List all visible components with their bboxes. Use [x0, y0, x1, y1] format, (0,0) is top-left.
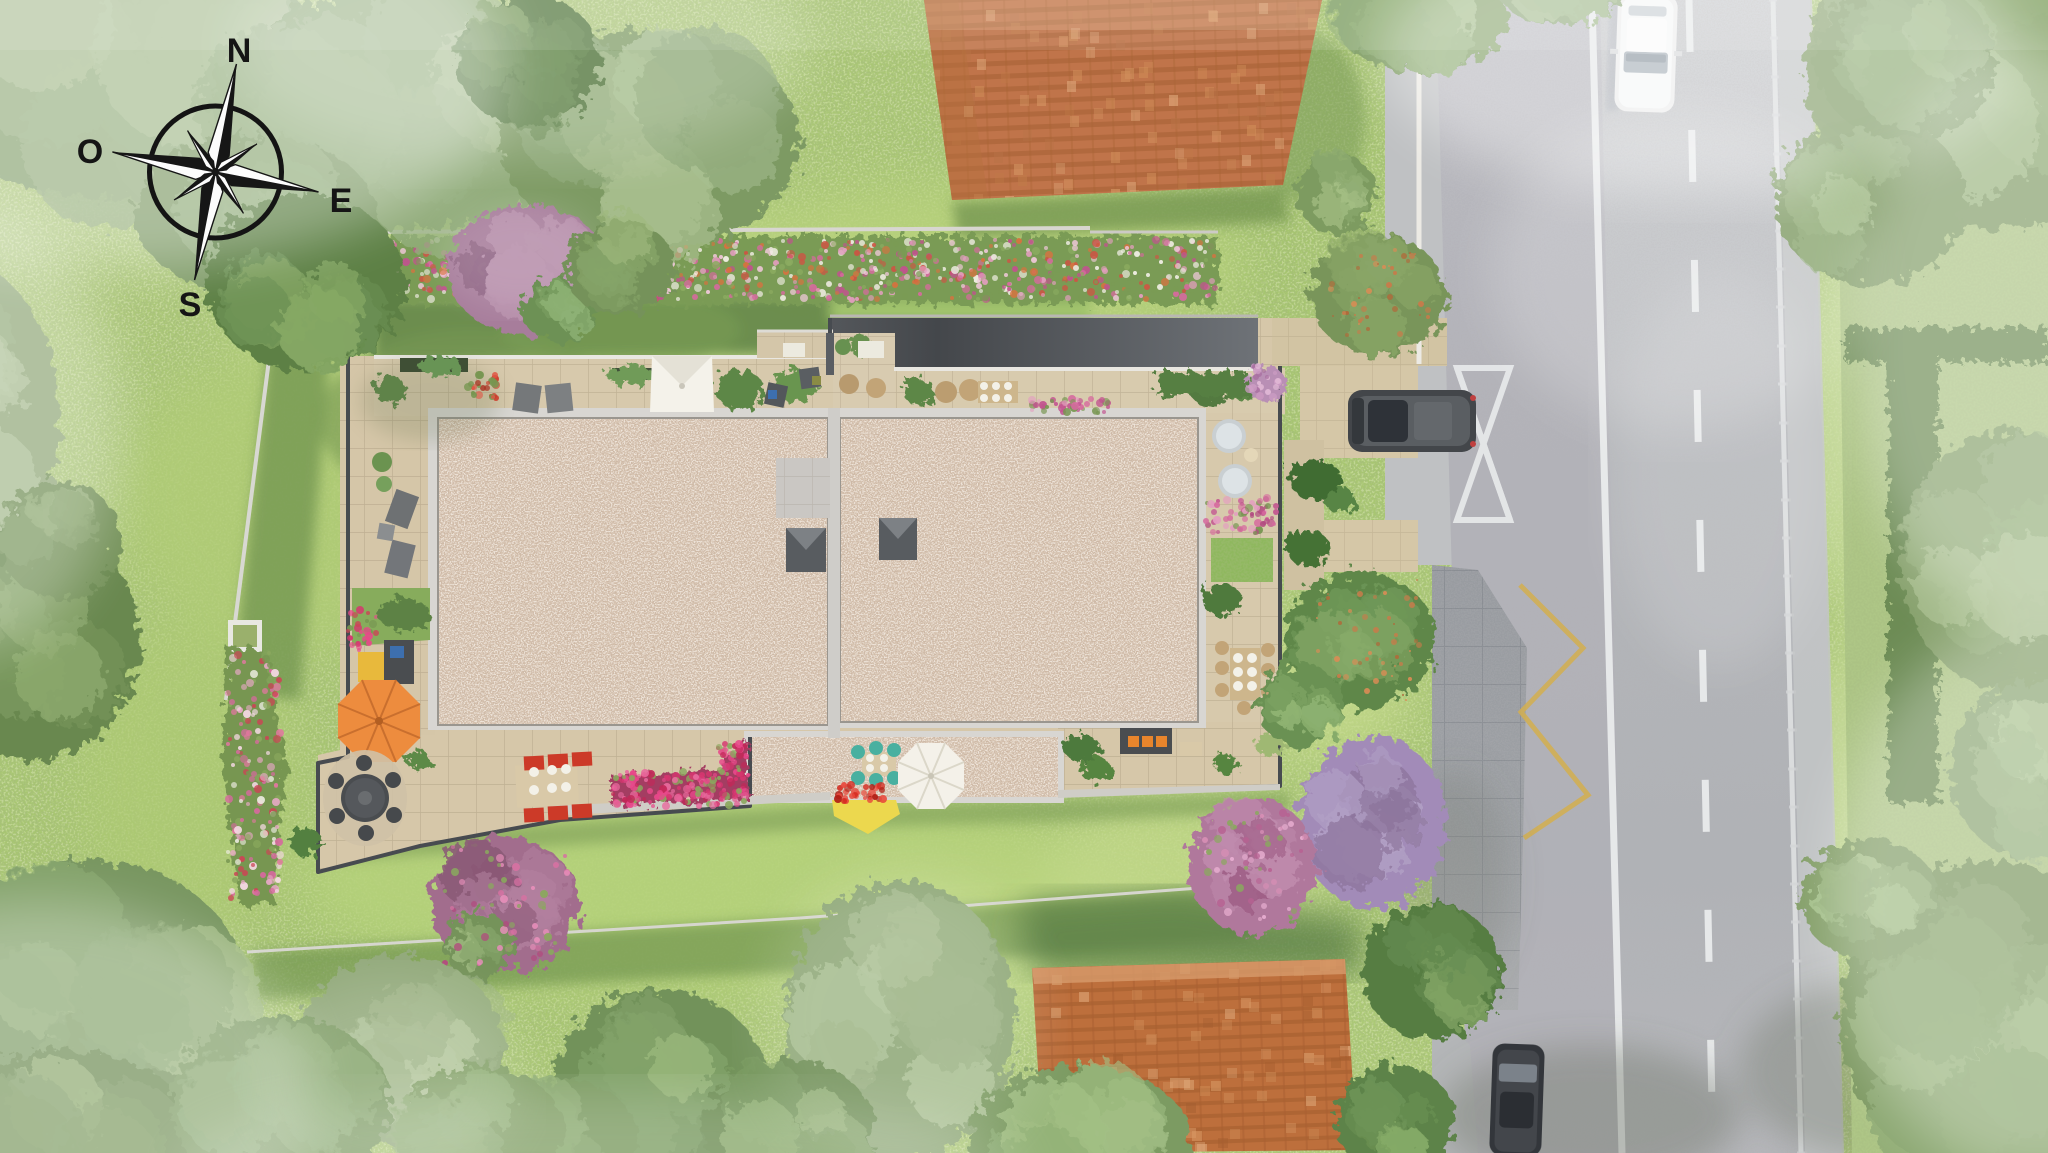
svg-text:E: E	[330, 182, 353, 220]
svg-text:N: N	[227, 32, 252, 70]
svg-text:S: S	[179, 286, 202, 324]
svg-text:O: O	[77, 133, 103, 171]
